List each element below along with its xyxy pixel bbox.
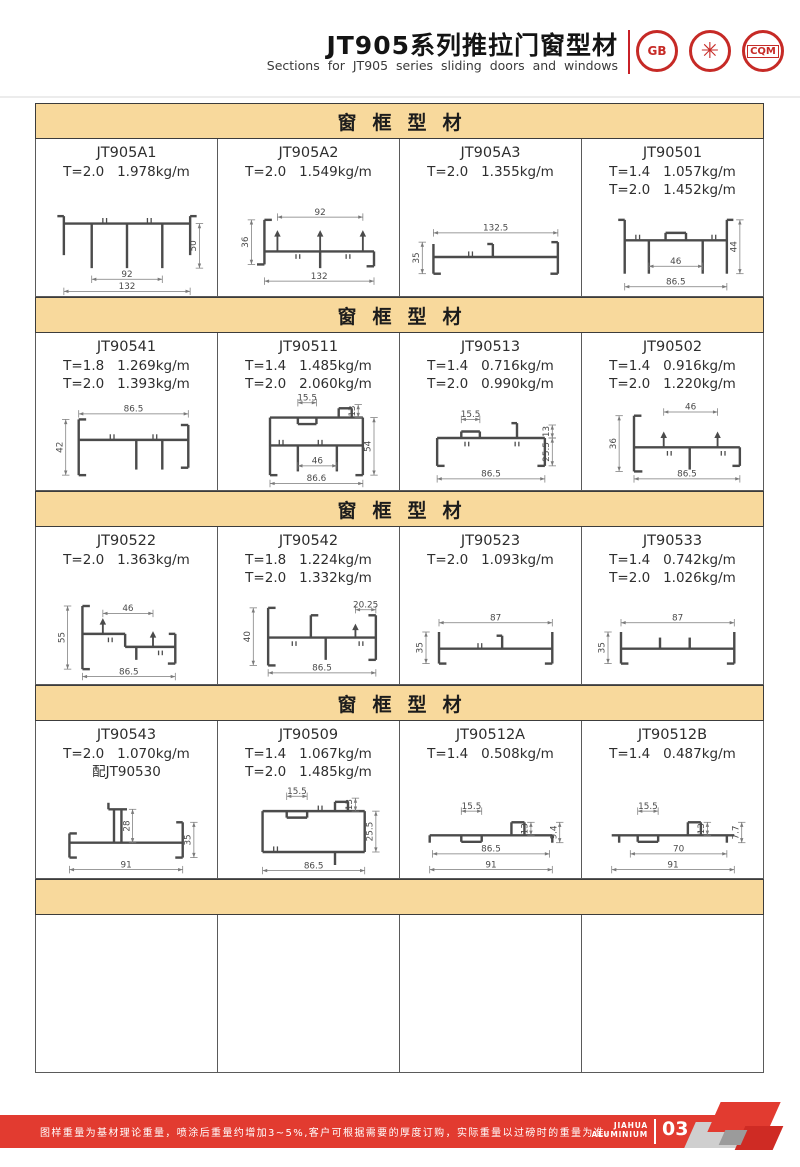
- section-row: JT90522T=2.0 1.363kg/m554686.5JT90542T=1…: [35, 527, 764, 685]
- svg-text:13: 13: [347, 405, 357, 416]
- brand-separator: [654, 1119, 656, 1144]
- profile-cell: JT90533T=1.4 0.742kg/mT=2.0 1.026kg/m873…: [582, 527, 763, 684]
- section-band: 窗框型材: [35, 491, 764, 527]
- profile-code: JT90511: [218, 338, 399, 357]
- svg-text:35: 35: [597, 642, 607, 653]
- profile-spec: T=1.4 1.057kg/m: [582, 163, 763, 181]
- profile-cell: JT905A3T=2.0 1.355kg/m132.535: [400, 139, 582, 296]
- profile-spec: T=1.4 0.742kg/m: [582, 551, 763, 569]
- profile-drawing: 15.5137.77091: [583, 774, 763, 878]
- quality-cert-logo-icon: ✳: [689, 30, 731, 72]
- profile-cell: JT90512AT=1.4 0.508kg/m15.5139.486.591: [400, 721, 582, 878]
- profile-code: JT90509: [218, 726, 399, 745]
- page-number: 03: [662, 1118, 688, 1140]
- svg-text:46: 46: [670, 257, 682, 267]
- catalog-page: JT905系列推拉门窗型材 Sections for JT905 series …: [0, 0, 800, 1167]
- profile-drawing: 554686.5: [37, 580, 217, 684]
- svg-text:28: 28: [122, 820, 132, 831]
- profile-spec: T=2.0 1.363kg/m: [36, 551, 217, 569]
- profile-spec: T=1.4 0.487kg/m: [582, 745, 763, 763]
- svg-text:15.5: 15.5: [460, 410, 480, 420]
- profile-drawing: 8735: [401, 580, 581, 684]
- svg-text:86.5: 86.5: [119, 667, 139, 677]
- svg-text:55: 55: [57, 632, 67, 643]
- profile-spec: T=1.4 1.067kg/m: [218, 745, 399, 763]
- profile-drawing: 15.513544686.6: [219, 386, 399, 490]
- profile-drawing: 15.51325.586.5: [219, 774, 399, 878]
- page-title: JT905系列推拉门窗型材: [326, 26, 618, 62]
- svg-text:25.5: 25.5: [365, 822, 375, 842]
- brand-line1: JIAHUA: [560, 1121, 648, 1130]
- profile-code: JT90541: [36, 338, 217, 357]
- section-row: JT905A1T=2.0 1.978kg/m5092132JT905A2T=2.…: [35, 139, 764, 297]
- profile-spec: T=2.0 1.549kg/m: [218, 163, 399, 181]
- brand-name: JIAHUA ALUMINIUM: [560, 1121, 648, 1140]
- svg-text:13: 13: [697, 823, 707, 834]
- profile-code: JT905A2: [218, 144, 399, 163]
- header-rule: [0, 96, 800, 98]
- svg-text:50: 50: [189, 240, 199, 252]
- svg-text:86.6: 86.6: [306, 474, 326, 484]
- company-logo-icon: [688, 1100, 798, 1160]
- profile-cell: JT90523T=2.0 1.093kg/m8735: [400, 527, 582, 684]
- svg-text:86.5: 86.5: [481, 470, 501, 480]
- profile-cell: JT90541T=1.8 1.269kg/mT=2.0 1.393kg/m86.…: [36, 333, 218, 490]
- profile-spec: T=1.4 0.716kg/m: [400, 357, 581, 375]
- svg-text:44: 44: [729, 241, 739, 253]
- profile-spec: T=2.0 1.070kg/m: [36, 745, 217, 763]
- svg-text:86.5: 86.5: [123, 405, 143, 415]
- profile-code: JT90512A: [400, 726, 581, 745]
- profile-spec: T=1.4 1.485kg/m: [218, 357, 399, 375]
- svg-text:40: 40: [243, 631, 253, 643]
- section-band: 窗框型材: [35, 297, 764, 333]
- svg-text:86.5: 86.5: [677, 470, 697, 480]
- profile-cell: JT90542T=1.8 1.224kg/mT=2.0 1.332kg/m402…: [218, 527, 400, 684]
- profile-drawing: 15.51325.586.5: [401, 386, 581, 490]
- section-band: [35, 879, 764, 915]
- section-row: JT90541T=1.8 1.269kg/mT=2.0 1.393kg/m86.…: [35, 333, 764, 491]
- profile-cell: JT90509T=1.4 1.067kg/mT=2.0 1.485kg/m15.…: [218, 721, 400, 878]
- svg-text:91: 91: [120, 860, 131, 870]
- svg-text:87: 87: [490, 613, 501, 623]
- profile-drawing: 283591: [37, 774, 217, 878]
- svg-text:15.5: 15.5: [287, 787, 307, 797]
- profile-cell: JT90501T=1.4 1.057kg/mT=2.0 1.452kg/m444…: [582, 139, 763, 296]
- profile-drawing: 132.535: [401, 192, 581, 296]
- profile-drawing: 8735: [583, 580, 763, 684]
- svg-text:36: 36: [241, 236, 251, 248]
- profile-code: JT90501: [582, 144, 763, 163]
- svg-text:86.5: 86.5: [665, 277, 685, 287]
- cqm-logo-text: CQM: [747, 45, 779, 58]
- cert-logos: GB ✳ CQM: [636, 30, 784, 72]
- section-band: 窗框型材: [35, 103, 764, 139]
- profile-code: JT90523: [400, 532, 581, 551]
- profile-spec: T=1.4 0.508kg/m: [400, 745, 581, 763]
- profile-cell: JT90543T=2.0 1.070kg/m配JT90530283591: [36, 721, 218, 878]
- svg-text:15.5: 15.5: [461, 802, 481, 812]
- svg-text:35: 35: [183, 834, 193, 845]
- profile-spec: T=1.8 1.269kg/m: [36, 357, 217, 375]
- profile-cell: JT905A2T=2.0 1.549kg/m9236132: [218, 139, 400, 296]
- brand-line2: ALUMINIUM: [560, 1130, 648, 1139]
- profile-spec: T=1.4 0.916kg/m: [582, 357, 763, 375]
- profile-code: JT905A3: [400, 144, 581, 163]
- svg-text:54: 54: [363, 440, 373, 452]
- svg-text:46: 46: [122, 604, 134, 614]
- profile-spec: T=1.8 1.224kg/m: [218, 551, 399, 569]
- svg-text:35: 35: [412, 252, 422, 263]
- svg-text:87: 87: [672, 613, 683, 623]
- svg-text:70: 70: [672, 845, 684, 855]
- svg-text:92: 92: [314, 208, 325, 218]
- profile-cell: JT90513T=1.4 0.716kg/mT=2.0 0.990kg/m15.…: [400, 333, 582, 490]
- profile-code: JT90543: [36, 726, 217, 745]
- profile-code: JT90542: [218, 532, 399, 551]
- profile-cell: JT90511T=1.4 1.485kg/mT=2.0 2.060kg/m15.…: [218, 333, 400, 490]
- profile-drawing: 15.5139.486.591: [401, 774, 581, 878]
- svg-text:91: 91: [667, 860, 678, 870]
- profile-table: 窗框型材JT905A1T=2.0 1.978kg/m5092132JT905A2…: [35, 103, 764, 1073]
- svg-text:9.4: 9.4: [549, 825, 559, 839]
- profile-code: JT90512B: [582, 726, 763, 745]
- profile-drawing: 4020.2586.5: [219, 580, 399, 684]
- profile-code: JT90502: [582, 338, 763, 357]
- svg-text:13: 13: [520, 823, 530, 834]
- svg-text:36: 36: [608, 438, 618, 450]
- footer-note: 图样重量为基材理论重量，喷涂后重量约增加3~5%,客户可根据需要的厚度订购，实际…: [40, 1124, 580, 1139]
- header-divider: [628, 30, 630, 74]
- profile-spec: T=2.0 1.978kg/m: [36, 163, 217, 181]
- svg-text:35: 35: [415, 642, 425, 653]
- profile-cell: [582, 915, 763, 1072]
- svg-text:132.5: 132.5: [483, 224, 508, 234]
- svg-text:13: 13: [345, 799, 355, 810]
- profile-cell: JT905A1T=2.0 1.978kg/m5092132: [36, 139, 218, 296]
- section-band: 窗框型材: [35, 685, 764, 721]
- profile-drawing: 5092132: [37, 192, 217, 296]
- profile-drawing: 9236132: [219, 192, 399, 296]
- profile-cell: JT90522T=2.0 1.363kg/m554686.5: [36, 527, 218, 684]
- svg-text:46: 46: [685, 403, 697, 413]
- profile-spec: T=2.0 1.355kg/m: [400, 163, 581, 181]
- gb-cert-logo-icon: GB: [636, 30, 678, 72]
- svg-text:20.25: 20.25: [353, 600, 378, 610]
- profile-cell: JT90502T=1.4 0.916kg/mT=2.0 1.220kg/m463…: [582, 333, 763, 490]
- svg-text:13: 13: [542, 426, 552, 437]
- profile-drawing: 463686.5: [583, 386, 763, 490]
- profile-code: JT90522: [36, 532, 217, 551]
- svg-text:7.7: 7.7: [731, 825, 741, 839]
- profile-cell: [400, 915, 582, 1072]
- profile-cell: [36, 915, 218, 1072]
- section-row: [35, 915, 764, 1073]
- profile-code: JT90513: [400, 338, 581, 357]
- profile-cell: [218, 915, 400, 1072]
- profile-drawing: 444686.5: [583, 192, 763, 296]
- profile-code: JT90533: [582, 532, 763, 551]
- svg-text:91: 91: [485, 860, 496, 870]
- profile-code: JT905A1: [36, 144, 217, 163]
- page-subtitle: Sections for JT905 series sliding doors …: [267, 58, 618, 73]
- svg-text:86.5: 86.5: [481, 845, 501, 855]
- svg-text:92: 92: [121, 270, 132, 280]
- svg-text:46: 46: [311, 457, 323, 467]
- profile-cell: JT90512BT=1.4 0.487kg/m15.5137.77091: [582, 721, 763, 878]
- profile-drawing: 86.542: [37, 386, 217, 490]
- svg-text:132: 132: [118, 282, 135, 292]
- profile-spec: T=2.0 1.093kg/m: [400, 551, 581, 569]
- quality-logo-text: ✳: [701, 39, 719, 64]
- gb-logo-text: GB: [648, 44, 667, 58]
- cqm-cert-logo-icon: CQM: [742, 30, 784, 72]
- svg-text:86.5: 86.5: [312, 664, 332, 674]
- svg-text:25.5: 25.5: [542, 442, 552, 462]
- svg-text:132: 132: [310, 272, 327, 282]
- svg-text:42: 42: [55, 442, 65, 453]
- svg-text:86.5: 86.5: [303, 861, 323, 871]
- svg-text:15.5: 15.5: [638, 802, 658, 812]
- svg-text:15.5: 15.5: [297, 393, 317, 403]
- section-row: JT90543T=2.0 1.070kg/m配JT90530283591JT90…: [35, 721, 764, 879]
